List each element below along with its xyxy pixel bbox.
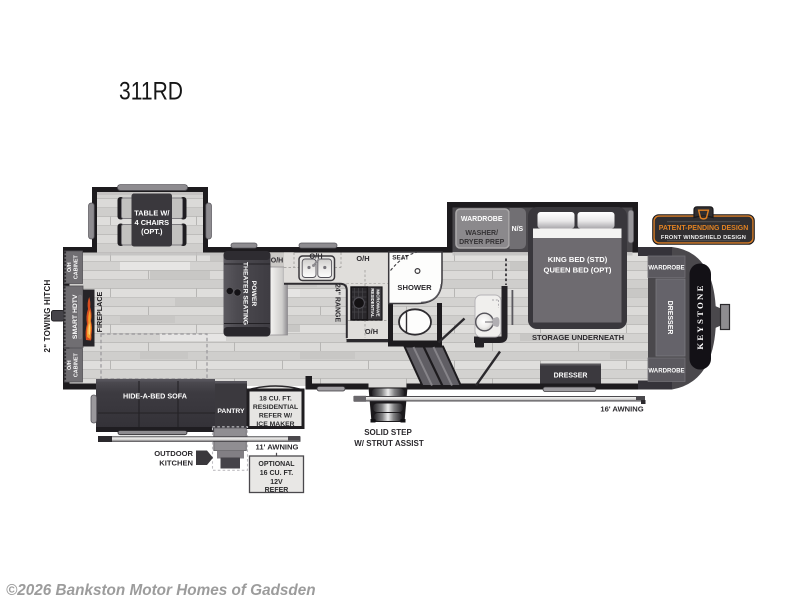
svg-text:SOLID STEP: SOLID STEP <box>364 428 412 437</box>
svg-text:16' AWNING: 16' AWNING <box>600 405 643 414</box>
svg-text:RESIDENTIAL: RESIDENTIAL <box>253 404 298 411</box>
svg-text:QUEEN BED (OPT): QUEEN BED (OPT) <box>544 266 612 275</box>
svg-text:12V: 12V <box>270 479 283 486</box>
svg-text:O/H: O/H <box>67 262 73 272</box>
svg-text:4 CHAIRS: 4 CHAIRS <box>135 218 170 227</box>
svg-text:11' AWNING: 11' AWNING <box>256 443 299 452</box>
svg-text:SEAT: SEAT <box>392 255 409 262</box>
svg-text:WARDROBE: WARDROBE <box>461 216 503 223</box>
svg-text:FIREPLACE: FIREPLACE <box>95 291 104 332</box>
svg-text:O/H: O/H <box>356 254 369 263</box>
svg-text:SMART HDTV: SMART HDTV <box>72 294 79 339</box>
svg-text:CABINET: CABINET <box>74 255 80 280</box>
svg-text:PATENT-PENDING DESIGN: PATENT-PENDING DESIGN <box>659 225 749 232</box>
svg-text:WARDROBE: WARDROBE <box>648 368 684 375</box>
svg-text:PANTRY: PANTRY <box>217 408 245 415</box>
svg-text:FRONT WINDSHIELD DESIGN: FRONT WINDSHIELD DESIGN <box>661 235 746 241</box>
svg-text:KEYSTONE: KEYSTONE <box>695 283 705 349</box>
svg-text:16 CU. FT.: 16 CU. FT. <box>260 470 294 477</box>
svg-text:TABLE W/: TABLE W/ <box>134 209 169 218</box>
svg-text:(OPT.): (OPT.) <box>141 227 163 236</box>
svg-text:HIDE-A-BED SOFA: HIDE-A-BED SOFA <box>123 392 187 401</box>
svg-text:DRESSER: DRESSER <box>666 301 673 335</box>
svg-text:MICROWAVE: MICROWAVE <box>375 289 380 316</box>
svg-text:24" RANGE: 24" RANGE <box>334 284 341 323</box>
svg-text:CABINET: CABINET <box>74 353 80 378</box>
svg-text:OUTDOOR: OUTDOOR <box>154 449 193 458</box>
svg-text:WARDROBE: WARDROBE <box>648 265 684 272</box>
svg-text:REFER: REFER <box>265 487 289 494</box>
svg-text:O/H: O/H <box>271 258 283 265</box>
svg-text:KING BED (STD): KING BED (STD) <box>548 255 608 264</box>
svg-text:N/S: N/S <box>512 226 524 233</box>
svg-text:ICE MAKER: ICE MAKER <box>256 421 294 428</box>
svg-text:KITCHEN: KITCHEN <box>159 459 193 468</box>
svg-text:DRYER PREP: DRYER PREP <box>459 239 505 246</box>
svg-text:O/H: O/H <box>67 360 73 370</box>
svg-text:18 CU. FT.: 18 CU. FT. <box>259 396 292 403</box>
svg-text:STORAGE UNDERNEATH: STORAGE UNDERNEATH <box>532 333 624 342</box>
svg-text:SHOWER: SHOWER <box>397 283 432 292</box>
svg-text:OPTIONAL: OPTIONAL <box>258 461 295 468</box>
svg-text:W/ STRUT ASSIST: W/ STRUT ASSIST <box>354 439 424 448</box>
svg-text:WASHER/: WASHER/ <box>465 230 498 237</box>
svg-text:POWER: POWER <box>250 281 257 307</box>
svg-text:THEATER SEATING: THEATER SEATING <box>242 262 249 325</box>
svg-text:2" TOWING HITCH: 2" TOWING HITCH <box>43 280 52 353</box>
svg-text:O/H: O/H <box>365 327 378 336</box>
svg-text:RESIDENTIAL: RESIDENTIAL <box>370 288 375 318</box>
svg-text:DRESSER: DRESSER <box>554 373 588 380</box>
svg-text:REFER W/: REFER W/ <box>259 413 292 420</box>
svg-text:311RD: 311RD <box>119 78 183 106</box>
svg-text:O/H: O/H <box>309 252 322 261</box>
svg-text:©2026 Bankston Motor Homes of: ©2026 Bankston Motor Homes of Gadsden <box>6 582 316 599</box>
